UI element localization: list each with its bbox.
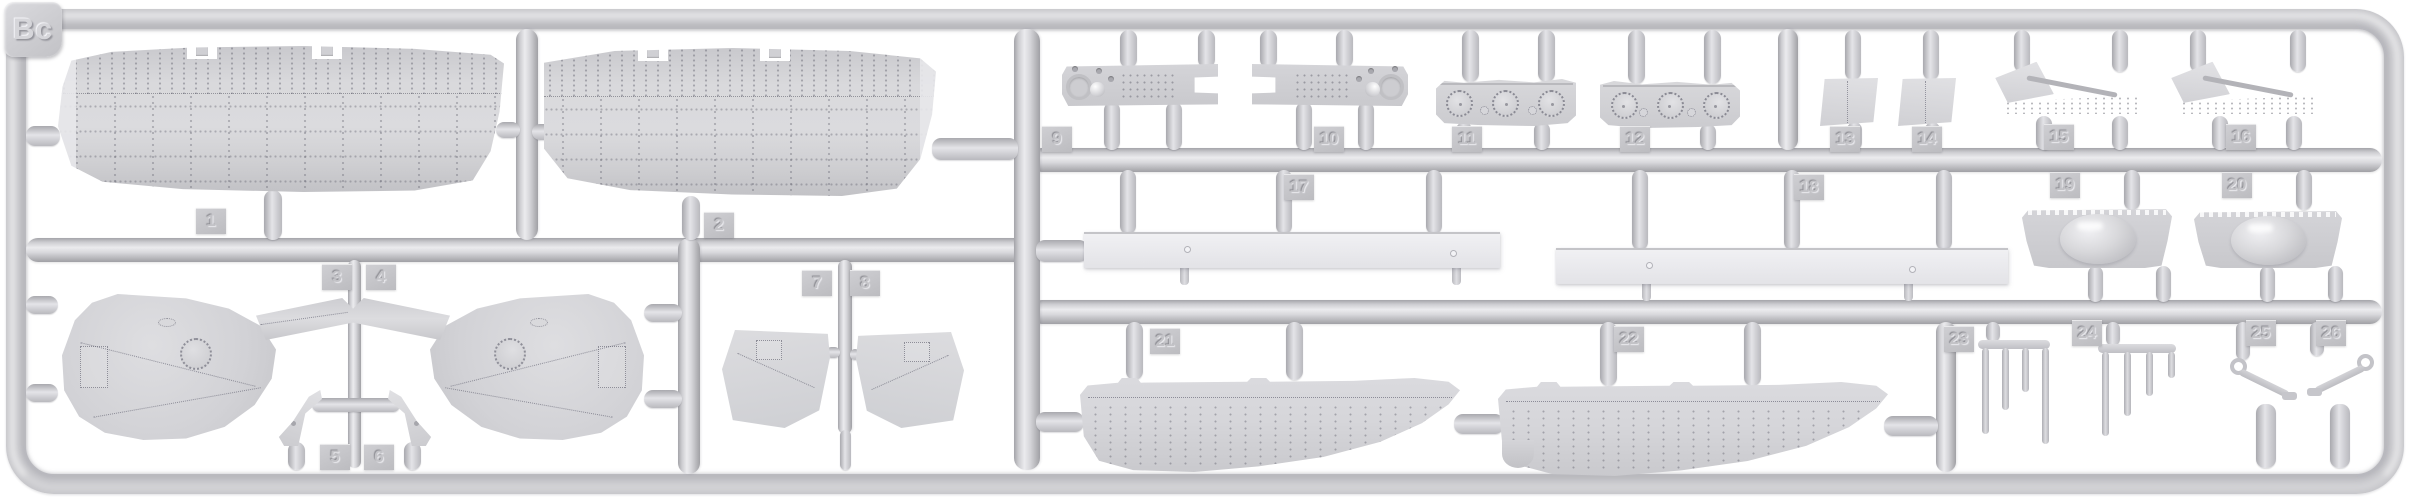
gate (2330, 404, 2350, 468)
porthole (1703, 92, 1730, 119)
part-tag-19: 19 (2050, 172, 2080, 198)
part-tag-2: 2 (704, 212, 734, 238)
gate (1358, 102, 1374, 150)
part-flat-panel-13 (1820, 78, 1878, 126)
porthole (1611, 92, 1638, 119)
gate (2106, 322, 2120, 346)
gate (1426, 170, 1442, 234)
hull-seam (1088, 397, 1453, 398)
gate (1454, 414, 1504, 434)
gate (1538, 30, 1555, 82)
porthole (1492, 90, 1519, 117)
part-tag-1: 1 (196, 208, 226, 234)
gate (2286, 116, 2302, 150)
part-upper-wing-2 (544, 48, 936, 196)
small-hole (1108, 76, 1114, 82)
compass-dial (1378, 74, 1404, 100)
hatch-ring (494, 338, 526, 370)
dome (2060, 214, 2136, 264)
comb-pin (2002, 348, 2009, 410)
wing-rivet-grid (58, 94, 504, 192)
runner-top-right-divider (1778, 29, 1798, 150)
part-strut-comb-23 (1978, 340, 2050, 349)
small-porthole (1687, 108, 1696, 117)
arm-seam (260, 312, 347, 325)
part-gun-fairing-3 (62, 290, 354, 442)
gate (496, 122, 520, 138)
part-tag-25: 25 (2246, 320, 2276, 346)
wing-slot (312, 46, 342, 59)
hatch-ring (180, 338, 212, 370)
part-dome-fairing-20 (2194, 210, 2342, 268)
part-tag-24: 24 (2072, 320, 2102, 346)
gate (2112, 116, 2128, 150)
part-tag-18: 18 (1794, 174, 1824, 200)
fairing-body (62, 294, 276, 440)
dotted-patch (904, 342, 930, 362)
part-flat-panel-14 (1898, 78, 1956, 126)
gate (932, 138, 1018, 160)
part-porthole-panel-12 (1600, 80, 1740, 128)
plank-hole (1184, 246, 1191, 253)
knob (1090, 82, 1105, 97)
gate (2124, 170, 2140, 210)
panel-seam (1925, 81, 1926, 123)
part-tag-7: 7 (802, 270, 832, 296)
comb-pin (2022, 348, 2029, 392)
sprue-label-tab: Bc (4, 2, 62, 57)
gate (1104, 102, 1120, 150)
panel-seam (445, 387, 613, 418)
gate (1632, 170, 1648, 250)
fairing-arm (352, 298, 450, 340)
part-tag-16: 16 (2226, 124, 2256, 150)
hull-seam (1506, 401, 1880, 402)
plank-tab (1904, 283, 1913, 301)
hull-end-flap (1502, 440, 1534, 468)
fairing-body (430, 294, 644, 440)
part-tag-11: 11 (1452, 126, 1482, 152)
part-tag-21: 21 (1150, 328, 1180, 354)
small-hole (1096, 68, 1102, 74)
part-upper-wing-1 (58, 46, 504, 192)
part-strut-assembly-16 (2174, 66, 2320, 118)
comb-pin (1982, 348, 1989, 434)
rivet-field (1120, 72, 1178, 98)
gate (1336, 30, 1353, 68)
gate (1986, 322, 2000, 342)
gate (644, 304, 682, 322)
gate (2260, 266, 2275, 302)
plank-tab (1452, 267, 1461, 285)
gate (1628, 30, 1645, 84)
part-tag-10: 10 (1314, 126, 1344, 152)
oval-opening (530, 318, 548, 327)
runner-left-horizontal (26, 238, 1038, 262)
gate (682, 196, 700, 240)
wing-rivet-grid (544, 97, 936, 196)
gate (840, 430, 851, 470)
part-spar-plank-18 (1556, 248, 2008, 284)
small-hole (1072, 66, 1078, 72)
part-bracket-26 (2304, 352, 2374, 400)
gate (1166, 102, 1182, 150)
gate (644, 390, 682, 408)
gate (2156, 266, 2171, 302)
part-tag-5: 5 (320, 444, 350, 470)
top-lip (1439, 83, 1573, 85)
runner-left-divider (678, 238, 700, 474)
rivet-field (1292, 72, 1350, 98)
part-tag-13: 13 (1830, 126, 1860, 152)
gate (1120, 30, 1137, 68)
knob (1365, 82, 1380, 97)
gate (1036, 240, 1088, 262)
comb-pin (2124, 352, 2131, 416)
porthole (1446, 90, 1473, 117)
wing-slot (760, 48, 790, 61)
part-dome-fairing-19 (2022, 208, 2172, 268)
part-tag-20: 20 (2222, 172, 2252, 198)
part-gun-fairing-4 (352, 290, 644, 442)
plank-tab (1180, 267, 1189, 285)
gate (1036, 412, 1084, 432)
comb-pin (2102, 352, 2109, 436)
part-spar-plank-17 (1084, 232, 1500, 268)
part-strut-comb-24 (2098, 344, 2176, 353)
part-tag-22: 22 (1614, 326, 1644, 352)
gate (26, 296, 58, 314)
gate (288, 442, 305, 470)
part-strut-assembly-15 (1998, 66, 2144, 118)
comb-pin (2042, 348, 2049, 444)
sprue-photo: 1 2 3 4 5 6 7 8 9 10 11 12 13 14 15 16 1… (0, 0, 2410, 502)
part-instrument-panel-9 (1062, 64, 1218, 106)
gate (1462, 30, 1479, 82)
runner-mid-upper (1030, 148, 2382, 172)
gate (2296, 170, 2312, 210)
plank-hole (1450, 250, 1457, 257)
gate (26, 126, 60, 146)
gate (1744, 322, 1761, 386)
comb-pin (2146, 352, 2153, 396)
gate (1286, 322, 1303, 380)
top-lip (1603, 85, 1737, 87)
part-tag-23: 23 (1944, 326, 1974, 352)
plank-hole (1646, 262, 1653, 269)
part-tag-8: 8 (850, 270, 880, 296)
panel-seam (93, 387, 261, 418)
dotted-patch (80, 346, 108, 388)
gate (1923, 30, 1939, 80)
part-tag-26: 26 (2316, 320, 2346, 346)
wing-corrugation (544, 48, 936, 97)
small-hole (1392, 66, 1398, 72)
gate (2328, 266, 2343, 302)
bracket-foot (2282, 392, 2297, 400)
part-tag-3: 3 (322, 264, 352, 290)
gate (1296, 102, 1312, 150)
gate (2256, 404, 2276, 468)
small-hole (1356, 76, 1362, 82)
part-tag-17: 17 (1284, 174, 1314, 200)
comb-pin (2168, 352, 2175, 378)
gate (1884, 416, 1938, 436)
gate (1198, 30, 1215, 68)
plank-hole (1909, 266, 1916, 273)
gate (1936, 170, 1952, 250)
gate (264, 190, 282, 240)
wing-corrugation (58, 46, 504, 94)
gate (2088, 266, 2103, 302)
gate (1126, 322, 1143, 380)
bracket-foot (2307, 388, 2322, 396)
small-hole (1368, 68, 1374, 74)
gate (1700, 124, 1716, 150)
part-instrument-panel-10 (1252, 64, 1408, 106)
part-tag-14: 14 (1912, 126, 1942, 152)
small-porthole (1639, 108, 1648, 117)
gate (1260, 30, 1277, 68)
part-tag-4: 4 (366, 264, 396, 290)
gate (1534, 122, 1550, 150)
gate (26, 384, 58, 402)
dome (2231, 216, 2306, 265)
part-tag-6: 6 (364, 444, 394, 470)
porthole (1657, 92, 1684, 119)
compass-dial (1066, 74, 1092, 100)
sprue-label: Bc (13, 13, 53, 47)
small-porthole (1528, 106, 1537, 115)
part-tag-12: 12 (1620, 126, 1650, 152)
dotted-patch (598, 346, 626, 388)
small-porthole (1480, 106, 1489, 115)
oval-opening (158, 318, 176, 327)
part-porthole-panel-11 (1436, 78, 1576, 126)
porthole (1538, 90, 1565, 117)
gate (404, 442, 421, 470)
part-tag-9: 9 (1042, 126, 1072, 152)
gate (1845, 30, 1861, 80)
wing-slot (187, 46, 217, 59)
plank-tab (1642, 283, 1651, 301)
part-bracket-25 (2230, 356, 2300, 404)
gate (1704, 30, 1721, 84)
dotted-patch (756, 340, 782, 360)
gate (1120, 170, 1136, 234)
part-tag-15: 15 (2044, 124, 2074, 150)
panel-seam (1847, 81, 1848, 123)
runner-mid-lower (1030, 300, 2382, 324)
fairing-arm (256, 298, 354, 340)
